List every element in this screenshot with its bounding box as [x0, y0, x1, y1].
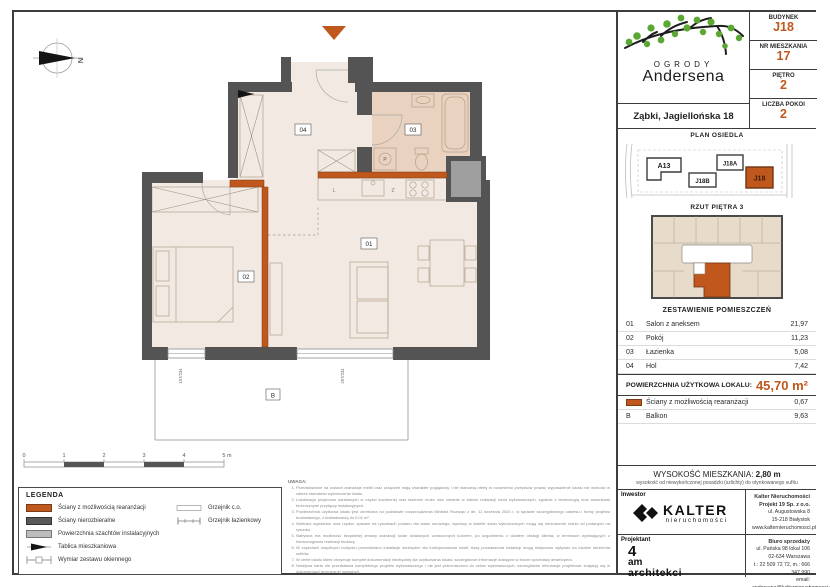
sales-office: Biuro sprzedaży ul. Pańska 98 lokal 106 … [746, 535, 816, 577]
legend-item: Grzejnik c.o. [176, 501, 261, 514]
window-dim-2: 257/234 [340, 368, 345, 384]
building-j18a-label: J18A [723, 162, 738, 168]
note-line: Niniejsza karta nie przedstawia kompletn… [296, 563, 610, 575]
legend-label: Grzejnik c.o. [208, 505, 241, 511]
scale-tick-1: 1 [62, 453, 65, 459]
company-website: www.kalternieruchomosci.pl [752, 525, 810, 533]
radiator-co-icon [176, 504, 202, 512]
4am-architekci-logo: 4 am architekci [628, 544, 682, 579]
note-line: Nabywca ma możliwość bezpłatnej zmiany a… [296, 533, 610, 545]
window-dim-1: 157/234 [178, 368, 183, 384]
orange-wall-swatch [626, 399, 642, 406]
disclaimer-notes: UWAGA: Przedstawione na rzutach aranżacj… [288, 479, 610, 575]
floor-plan: 04 03 01 02 B P L Z 157/234 257/234 [130, 20, 510, 450]
window-dimensions: 157/234 257/234 [178, 368, 345, 384]
legend-label: Ściany z możliwością rearanżacji [58, 505, 146, 511]
field-apartment-number: NR MIESZKANIA 17 [750, 41, 817, 70]
balcony-outline [155, 360, 408, 440]
brand-bottom: Andersena [618, 68, 749, 86]
legend-item: Ściany z możliwością rearanżacji [26, 501, 176, 514]
designer-cell: Projektant 4 am architekci [618, 535, 746, 577]
dishwasher-label: Z [391, 188, 394, 194]
table-row: 04 Hol 7,42 [618, 360, 816, 374]
height-value: 2,80 m [756, 470, 781, 479]
row-number: 02 [626, 335, 646, 342]
legend-item: Ściany nierozbieralne [26, 514, 176, 527]
sales-label: Biuro sprzedaży [752, 538, 810, 546]
building-j18b-label: J18B [695, 179, 710, 185]
room-label-01: 01 [366, 241, 373, 248]
legend-label: Ściany nierozbieralne [58, 518, 115, 524]
kalter-logo: KALTER nieruchomości [632, 502, 728, 524]
north-arrow: N [25, 22, 95, 92]
room-label-04: 04 [300, 127, 307, 134]
apartment-height: WYSOKOŚĆ MIESZKANIA: 2,80 m wysokość od … [618, 465, 816, 489]
balcony-label: B [271, 393, 275, 400]
row-number: B [626, 413, 646, 420]
apartment-card-page: N [0, 0, 830, 587]
location: Ząbki, Jagiellońska 18 [618, 103, 749, 129]
fridge-label: L [333, 188, 336, 194]
table-row: 01 Salon z aneksem 21,97 [618, 318, 816, 332]
investor-label: Inwestor [621, 492, 646, 498]
floor-thumb-title: RZUT PIĘTRA 3 [618, 204, 816, 211]
window-dimension-icon [26, 555, 52, 565]
legend-label: Tablica mieszkaniowa [58, 544, 116, 550]
tree-branch-logo-icon [621, 14, 747, 64]
usable-area-label: POWIERZCHNIA UŻYTKOWA LOKALU: [626, 382, 756, 389]
legend-item: Powierzchnia szachtów instalacyjnych [26, 527, 176, 540]
field-floor: PIĘTRO 2 [750, 70, 817, 99]
note-line: Przedstawione na rzutach aranżacje mebli… [296, 485, 610, 497]
table-row-walls: Ściany z możliwością rearanżacji 0,67 [618, 396, 816, 410]
field-value: J18 [750, 21, 817, 35]
note-line: Lokalizacja przyborów sanitarnych w częś… [296, 497, 610, 509]
row-area: 7,42 [794, 363, 808, 370]
site-plan-map: A13 J18B J18A J18 [619, 142, 816, 200]
sales-city: 02-634 Warszawa [752, 554, 810, 562]
row-name: Pokój [646, 335, 791, 342]
shaft-swatch [26, 530, 52, 538]
footer-row-designer: Projektant 4 am architekci Biuro sprzeda… [618, 534, 816, 577]
table-row-balcony: B Balkon 9,63 [618, 410, 816, 424]
info-panel: OGRODY Andersena Ząbki, Jagiellońska 18 … [616, 10, 816, 575]
investor-cell: Inwestor KALTER nieruchomości [618, 490, 746, 534]
rooms-table-title: ZESTAWIENIE POMIESZCZEŃ [618, 307, 816, 314]
height-label: WYSOKOŚĆ MIESZKANIA: [653, 470, 753, 479]
info-board-icon [26, 543, 52, 551]
scale-tick-0: 0 [22, 453, 25, 459]
installation-shaft [451, 161, 481, 197]
note-line: W częściach wspólnych budynku przewidzia… [296, 545, 610, 557]
row-name: Hol [646, 363, 794, 370]
table-row: 03 Łazienka 5,08 [618, 346, 816, 360]
height-note: wysokość od niewykończonej posadzki (szl… [618, 480, 816, 486]
company-city: 15-218 Białystok [752, 517, 810, 525]
room-label-03: 03 [410, 127, 417, 134]
building-j18-label: J18 [754, 176, 766, 183]
field-value: 2 [750, 108, 817, 122]
row-number: 01 [626, 321, 646, 328]
sales-phone: t.: 22 509 72 72, m.: 666 347 990 [752, 562, 810, 578]
note-line: Powierzchnia użytkowa lokalu jest określ… [296, 509, 610, 521]
company-address: Kalter Nieruchomości Projekt 19 Sp. z o.… [746, 490, 816, 534]
kalter-sub: nieruchomości [663, 518, 728, 524]
company-name: Kalter Nieruchomości Projekt 19 Sp. z o.… [752, 493, 810, 509]
radiator-bathroom-icon [176, 517, 202, 525]
legend-item: Grzejnik łazienkowy [176, 514, 261, 527]
note-line: Wartości wymiarów oraz rzędne opisane na… [296, 521, 610, 533]
floor-thumbnail [642, 213, 792, 301]
row-area: 5,08 [794, 349, 808, 356]
row-number: 04 [626, 363, 646, 370]
usable-area-value: 45,70 m² [756, 378, 808, 393]
scale-tick-3: 3 [142, 453, 145, 459]
field-rooms-count: LICZBA POKOI 2 [750, 99, 817, 128]
brand-text: OGRODY Andersena [618, 60, 749, 86]
legend-item: Wymiar zestawu okiennego [26, 553, 176, 566]
scale-tick-4: 4 [182, 453, 185, 459]
legend-label: Wymiar zestawu okiennego [58, 557, 131, 563]
row-number: 03 [626, 349, 646, 356]
legend-title: LEGENDA [26, 492, 274, 499]
legend-label: Powierzchnia szachtów instalacyjnych [58, 531, 159, 537]
table-row: 02 Pokój 11,23 [618, 332, 816, 346]
panel-header: OGRODY Andersena Ząbki, Jagiellońska 18 … [618, 12, 816, 129]
field-building: BUDYNEK J18 [750, 12, 817, 41]
designer-logo-architekci: architekci [628, 568, 682, 579]
field-value: 17 [750, 50, 817, 64]
company-street: ul. Augustowska 8 [752, 509, 810, 517]
site-plan-title: PLAN OSIEDLA [618, 132, 816, 139]
legend-label: Grzejnik łazienkowy [208, 518, 261, 524]
north-label: N [76, 58, 83, 63]
row-area: 21,97 [790, 321, 808, 328]
scale-tick-2: 2 [102, 453, 105, 459]
sales-email: email: andersena@kalternieruchomosci.pl [752, 577, 810, 587]
footer-row-investor: Inwestor KALTER nieruchomości Kalter Nie [618, 490, 816, 534]
kalter-logo-icon [632, 502, 658, 524]
row-name: Balkon [646, 413, 794, 420]
row-area: 0,67 [794, 399, 808, 406]
scale-bar: 0 1 2 3 4 5 m [16, 450, 246, 476]
scale-tick-5: 5 m [222, 453, 232, 459]
row-area: 11,23 [791, 335, 808, 342]
kalter-name: KALTER [663, 503, 728, 517]
notes-title: UWAGA: [288, 479, 610, 484]
structural-wall-swatch [26, 517, 52, 525]
brand-logo: OGRODY Andersena Ząbki, Jagiellońska 18 [618, 12, 749, 128]
usable-area-row: POWIERZCHNIA UŻYTKOWA LOKALU: 45,70 m² [618, 374, 816, 396]
legend-item: Tablica mieszkaniowa [26, 540, 176, 553]
rooms-table: ZESTAWIENIE POMIESZCZEŃ 01 Salon z aneks… [618, 304, 816, 424]
row-area: 9,63 [794, 413, 808, 420]
panel-footer: Inwestor KALTER nieruchomości Kalter Nie [618, 489, 816, 576]
orange-wall-swatch [26, 504, 52, 512]
unit-fields: BUDYNEK J18 NR MIESZKANIA 17 PIĘTRO 2 LI… [749, 12, 817, 128]
row-name: Salon z aneksem [646, 321, 790, 328]
field-value: 2 [750, 79, 817, 93]
room-label-02: 02 [243, 274, 250, 281]
row-name: Ściany z możliwością rearanżacji [646, 399, 794, 406]
entrance-marker-icon [322, 26, 346, 40]
building-a13-label: A13 [658, 163, 671, 170]
row-name: Łazienka [646, 349, 794, 356]
legend: LEGENDA Ściany z możliwością rearanżacji… [18, 487, 282, 575]
sales-street: ul. Pańska 98 lokal 106 [752, 546, 810, 554]
